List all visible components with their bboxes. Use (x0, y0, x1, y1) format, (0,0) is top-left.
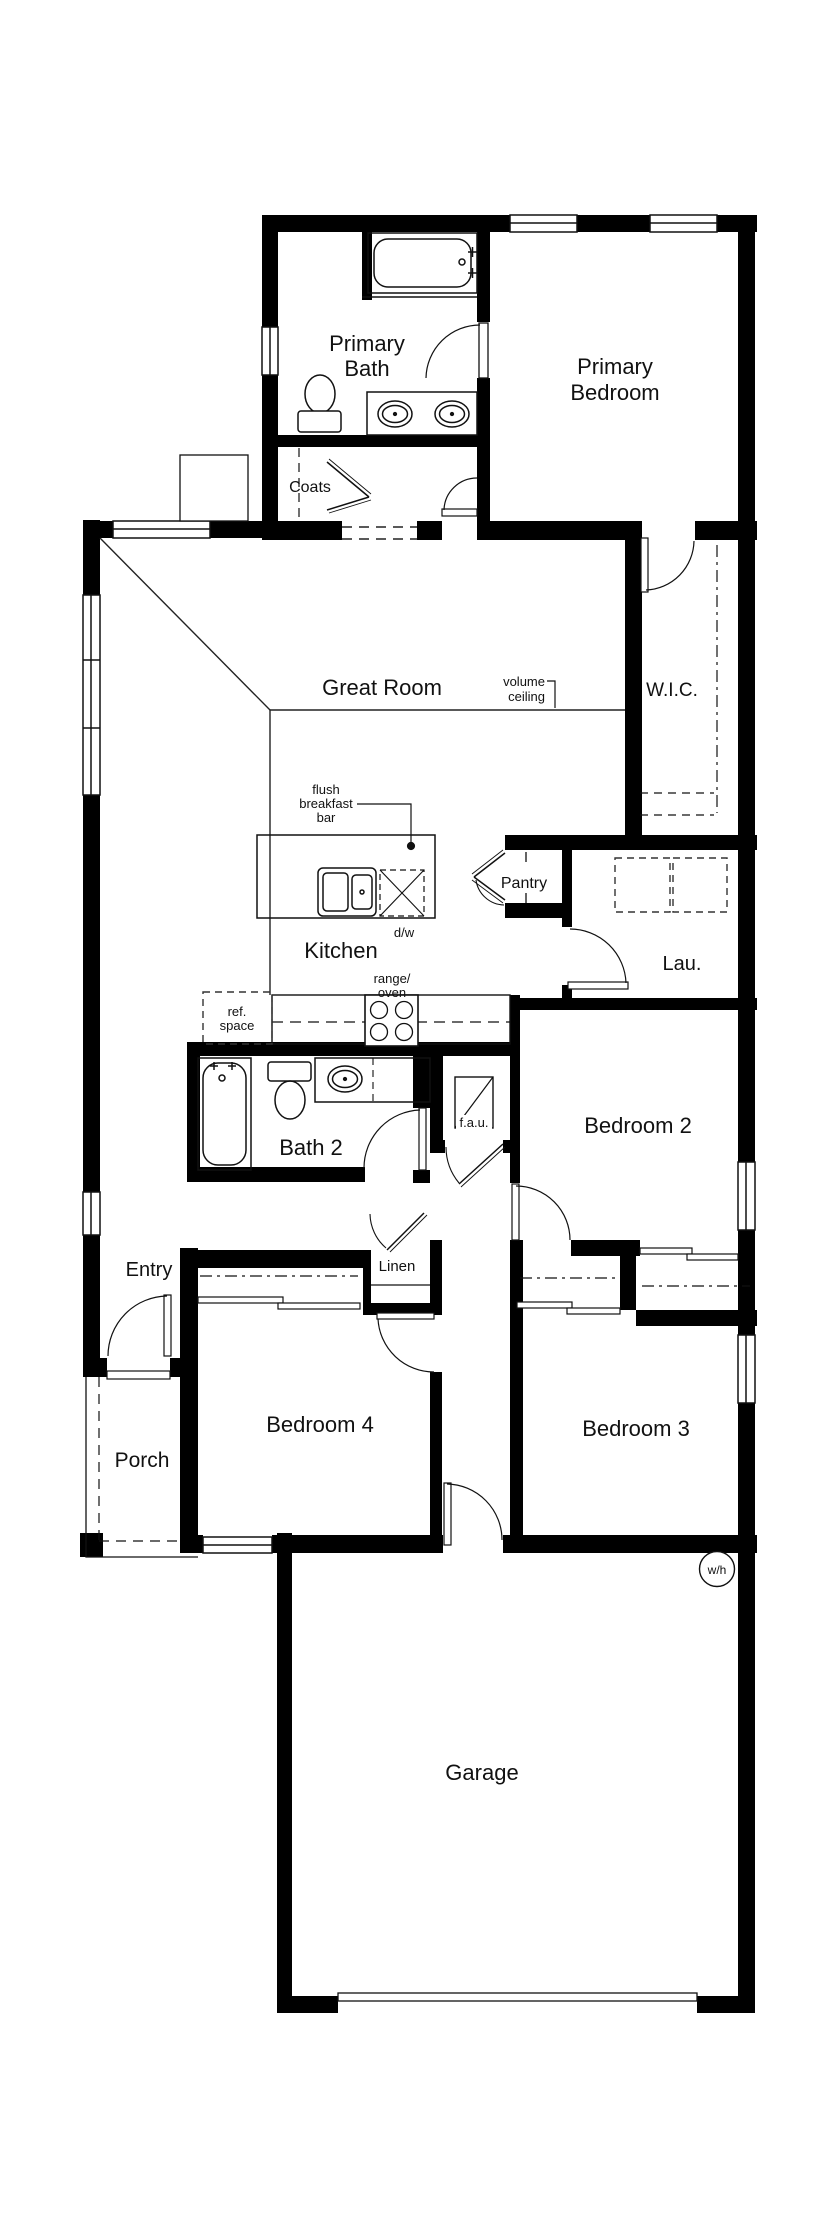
floor-plan-drawing: Primary Bath Primary Bedroom Coats Great… (0, 0, 840, 2223)
label-breakfast: breakfast (299, 796, 353, 811)
label-porch: Porch (115, 1449, 170, 1472)
bedroom3-closet (517, 1278, 620, 1314)
label-bar: bar (317, 810, 336, 825)
bedroom2-door (512, 1184, 570, 1240)
label-range: range/ (374, 971, 411, 986)
volume-ceiling-leader (547, 681, 555, 708)
garage-hall-door (444, 1483, 502, 1545)
breakfast-bar-leader (357, 804, 415, 850)
window (113, 521, 210, 538)
label-lau: Lau. (663, 953, 702, 975)
kitchen-dishwasher (380, 870, 424, 916)
primary-bath-door (426, 323, 488, 378)
fau-closet (446, 1077, 505, 1187)
label-wh: w/h (707, 1563, 727, 1577)
cased-opening-dashed (342, 527, 417, 539)
bath2-tub (198, 1058, 251, 1170)
label-primary-bedroom: Primary (577, 354, 653, 379)
primary-hall-door (442, 478, 477, 516)
label-volume: volume (503, 674, 545, 689)
bath2-toilet (268, 1062, 311, 1119)
window (203, 1537, 272, 1553)
label-primary-bedroom2: Bedroom (570, 380, 659, 405)
label-bedroom4: Bedroom 4 (266, 1412, 374, 1437)
wic-door (641, 538, 694, 592)
label-primary-bath: Primary (329, 331, 405, 356)
window (510, 215, 577, 232)
label-flush: flush (312, 782, 339, 797)
window (83, 595, 100, 795)
volume-ceiling-lines (100, 538, 625, 995)
label-ceiling: ceiling (508, 689, 545, 704)
label-pantry: Pantry (501, 875, 547, 892)
label-fau: f.a.u. (460, 1115, 489, 1130)
window (650, 215, 717, 232)
label-fau-group: f.a.u. (456, 1115, 492, 1130)
label-bedroom3: Bedroom 3 (582, 1416, 690, 1441)
label-kitchen: Kitchen (304, 938, 377, 963)
label-wic: W.I.C. (646, 680, 698, 701)
label-linen: Linen (379, 1258, 416, 1275)
window (83, 1192, 100, 1235)
window (262, 327, 278, 375)
primary-bath-toilet (298, 375, 341, 432)
label-great-room: Great Room (322, 675, 442, 700)
laundry-door (568, 929, 628, 989)
range-oven (365, 995, 418, 1046)
bedroom4-closet (198, 1276, 360, 1309)
entry-door (107, 1295, 171, 1379)
label-entry: Entry (126, 1259, 173, 1281)
label-dw: d/w (394, 925, 415, 940)
window (738, 1162, 755, 1230)
label-garage: Garage (445, 1760, 518, 1785)
garage-door (338, 1993, 697, 2001)
bath2-door (364, 1108, 426, 1170)
label-coats: Coats (289, 479, 331, 496)
primary-bath-vanity (367, 392, 477, 435)
label-space: space (220, 1018, 255, 1033)
label-primary-bath2: Bath (344, 356, 389, 381)
label-oven: oven (378, 985, 406, 1000)
label-bath2: Bath 2 (279, 1135, 343, 1160)
label-ref: ref. (228, 1004, 247, 1019)
window (738, 1335, 755, 1403)
floor-plan-page: Primary Bath Primary Bedroom Coats Great… (0, 0, 840, 2223)
label-bedroom2: Bedroom 2 (584, 1113, 692, 1138)
laundry-appliances (615, 858, 727, 912)
exterior-niche (180, 455, 248, 521)
primary-bath-tub (362, 233, 477, 297)
bath2-vanity (315, 1058, 430, 1102)
bedroom4-door (377, 1313, 434, 1372)
bedroom2-closet (640, 1248, 750, 1286)
